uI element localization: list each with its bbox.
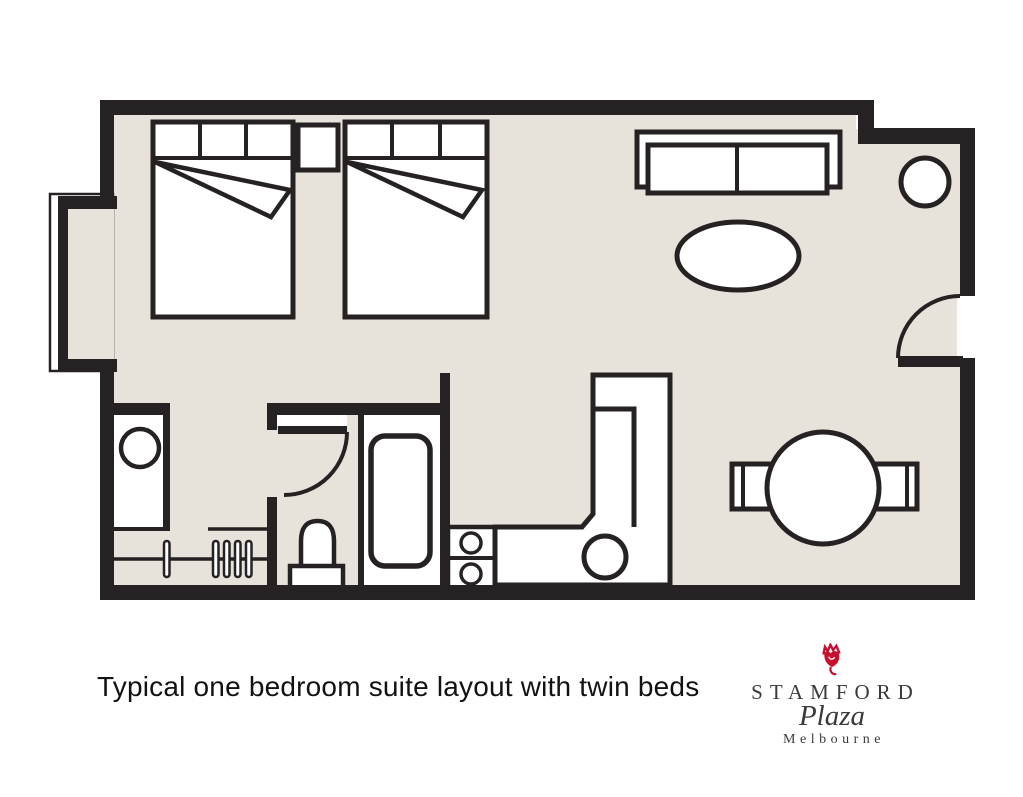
page: Typical one bedroom suite layout with tw…: [0, 0, 1023, 797]
hotel-logo: STAMFORD Plaza Melbourne: [723, 643, 941, 747]
bay-window: [50, 194, 117, 372]
wall-top-right: [858, 128, 975, 144]
side-table: [901, 158, 949, 206]
wall-right-upper: [960, 128, 975, 296]
twin-bed-2: [345, 122, 487, 317]
dining-table: [767, 432, 879, 544]
wall-kitchen: [440, 373, 450, 586]
wall-right-lower: [960, 358, 975, 600]
wall-vanity-right: [163, 415, 170, 530]
vanity-nook: [114, 415, 170, 530]
wall-toilet-left: [267, 497, 277, 586]
bay-wall-left: [58, 200, 68, 368]
bay-floor: [68, 209, 114, 359]
twin-bed-1: [153, 122, 293, 317]
wall-left-lower: [100, 372, 114, 600]
wall-vanity-top: [114, 403, 170, 415]
wall-left-upper: [100, 100, 114, 196]
kitchen-sink: [584, 536, 626, 578]
caption: Typical one bedroom suite layout with tw…: [97, 671, 699, 703]
entry-threshold: [957, 296, 975, 358]
coffee-table: [677, 222, 799, 290]
sofa: [637, 132, 840, 193]
rose-icon: [819, 643, 845, 679]
wall-toilet-bath-divider: [358, 403, 364, 586]
logo-city: Melbourne: [727, 732, 941, 747]
logo-brand-script: Plaza: [723, 702, 941, 731]
bathtub: [371, 436, 430, 566]
cooktop-hotplates: [448, 527, 495, 590]
vanity-basin: [121, 429, 159, 467]
toilet-bowl: [301, 521, 334, 567]
wall-top: [100, 100, 874, 115]
wall-bottom: [100, 585, 975, 600]
wall-toilet-hinge-stub: [267, 403, 277, 430]
nightstand: [298, 125, 338, 170]
entry-door-leaf: [898, 356, 963, 367]
bathroom-door-leaf: [278, 426, 347, 434]
bathroom-threshold: [277, 415, 347, 426]
